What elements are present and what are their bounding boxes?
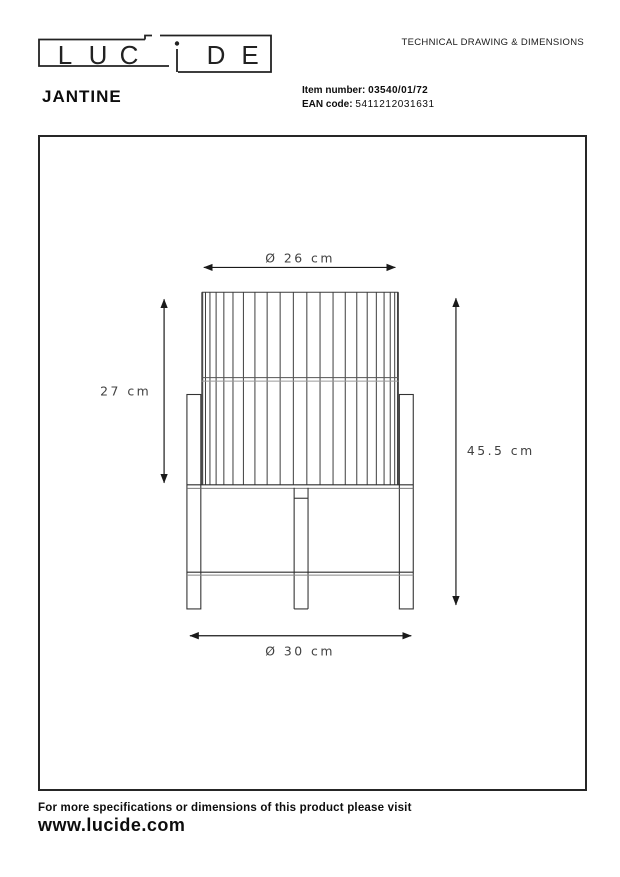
dim-label-base-diameter: Ø 30 cm: [265, 644, 335, 659]
lamp-technical-drawing: Ø 26 cm 27 cm 45.5 cm Ø 30 cm: [40, 137, 585, 789]
footer-website-link[interactable]: www.lucide.com: [38, 815, 185, 836]
lucide-logo: L U C D E: [38, 34, 272, 74]
logo-letter: L: [58, 40, 72, 70]
lamp-shade-slats: [202, 292, 399, 485]
drawing-frame: Ø 26 cm 27 cm 45.5 cm Ø 30 cm: [38, 135, 587, 791]
dim-label-total-height: 45.5 cm: [467, 443, 535, 458]
logo-letter: E: [241, 40, 258, 70]
document-title: TECHNICAL DRAWING & DIMENSIONS: [402, 37, 584, 48]
frame-center-post: [294, 488, 308, 609]
item-number-row: Item number: 03540/01/72: [302, 84, 435, 98]
frame-left-post: [187, 395, 201, 609]
dim-label-shade-height: 27 cm: [100, 383, 151, 398]
logo-letter: U: [89, 40, 108, 70]
ean-code-label: EAN code:: [302, 99, 353, 110]
ean-code-value: 5411212031631: [355, 99, 434, 110]
footer-note: For more specifications or dimensions of…: [38, 802, 412, 814]
frame-right-post: [399, 395, 413, 609]
logo-letter: C: [120, 40, 139, 70]
item-number-label: Item number:: [302, 85, 365, 96]
dim-label-top-diameter: Ø 26 cm: [265, 250, 335, 265]
item-number-value: 03540/01/72: [368, 85, 428, 96]
product-name: JANTINE: [42, 87, 122, 107]
ean-code-row: EAN code: 5411212031631: [302, 98, 435, 112]
logo-letter: D: [207, 40, 226, 70]
logo-letter-i-dot: [175, 41, 179, 45]
product-info-block: Item number: 03540/01/72 EAN code: 54112…: [302, 84, 435, 111]
